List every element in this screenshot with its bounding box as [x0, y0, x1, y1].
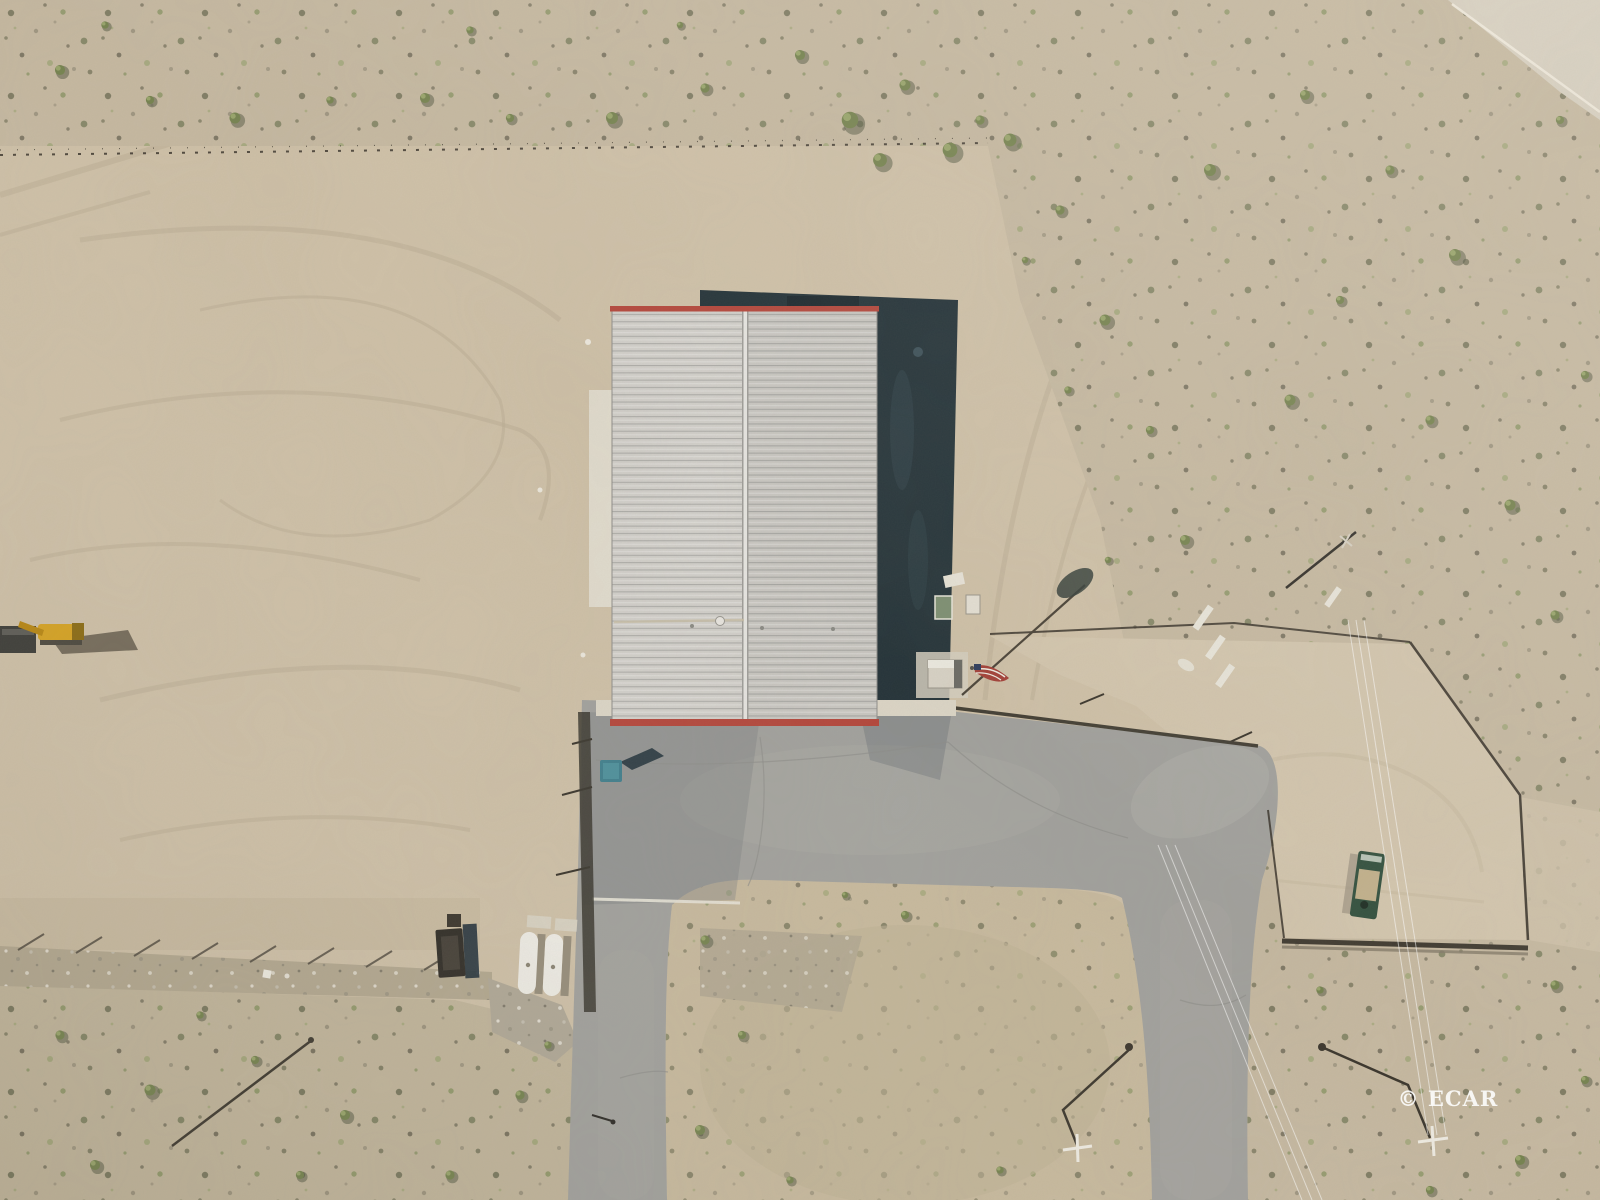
aerial-photo: © ECAR [0, 0, 1600, 1200]
light-gradient [0, 0, 1600, 1200]
aerial-photo-canvas: © ECAR [0, 0, 1600, 1200]
watermark: © ECAR [1398, 1086, 1499, 1111]
